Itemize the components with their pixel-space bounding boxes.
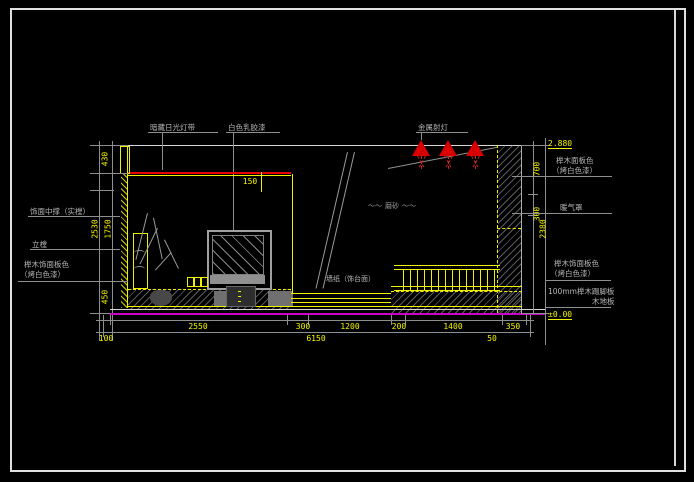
spotlight-cone-2 — [439, 140, 457, 156]
left-wall-hatch — [121, 173, 127, 308]
dim-100: 100 — [99, 334, 113, 343]
mid-platform-label: 墙纸（饰台面） — [326, 275, 375, 284]
goblet-1 — [187, 277, 194, 287]
goblet-3 — [201, 277, 208, 287]
dim-430: 430 — [101, 152, 110, 166]
ceiling-level-mark: 2.880 — [548, 139, 572, 149]
left-upright-label: 立樘 — [32, 240, 47, 249]
dim-1200: 1200 — [340, 322, 359, 331]
dim-1750: 1750 — [104, 219, 113, 238]
cad-elevation-canvas: 暗藏日光灯带 白色乳胶漆 150 430 2530 1750 450 饰面中撑（… — [0, 0, 694, 482]
spotlight-leader — [421, 132, 422, 140]
tv-screen — [212, 235, 264, 275]
step-line-1 — [291, 293, 391, 294]
pedestal-handle-1 — [238, 291, 241, 292]
hidden-light-leader — [162, 132, 163, 170]
cove-light-edge — [128, 175, 291, 176]
dim-200: 200 — [392, 322, 406, 331]
right-veneer-bottom-leader — [545, 280, 611, 281]
frosted-glass-label: 磨砂 — [385, 201, 399, 211]
left-upright-leader — [30, 249, 120, 250]
vase-detail-2 — [134, 266, 145, 272]
dim-450: 450 — [101, 290, 110, 304]
skirting-label: 100mm榉木踢脚板 — [548, 287, 614, 296]
left-veneer-leader — [18, 281, 92, 282]
pedestal-handle-3 — [238, 301, 241, 302]
btick-2 — [287, 315, 288, 325]
column-hatch — [497, 145, 522, 313]
left-tick-1750 — [90, 190, 114, 191]
white-paint-leader — [233, 132, 234, 242]
panel-edge-line — [292, 174, 293, 293]
skirting-leader — [545, 307, 611, 308]
dim-1400: 1400 — [443, 322, 462, 331]
dim-700: 700 — [533, 162, 542, 176]
hidden-light-label: 暗藏日光灯带 — [150, 123, 195, 132]
right-tick-ceiling — [521, 145, 549, 146]
goblet-2 — [194, 277, 201, 287]
right-veneer-bottom-label-2: （烤白色漆） — [550, 269, 595, 278]
spotlight-cone-1 — [412, 140, 430, 156]
radiator-cover-label: 暖气罩 — [560, 203, 583, 212]
tv-pedestal — [226, 286, 256, 307]
left-wall-line — [127, 145, 128, 308]
sheet-inner-border-line — [674, 10, 676, 466]
squiggle-right: ～～ — [402, 201, 416, 211]
spotlight-label: 金属射灯 — [418, 123, 448, 132]
right-platform-top-line — [391, 286, 522, 287]
dim-2380: 2380 — [539, 219, 548, 238]
right-tick-700 — [528, 194, 538, 195]
floor-structure-line — [110, 313, 545, 315]
wood-floor-label: 木地板 — [592, 297, 615, 306]
tv-speaker-band — [210, 275, 265, 284]
cabinet-base-right — [268, 291, 293, 307]
hidden-light-underline — [148, 132, 218, 133]
dim-50: 50 — [487, 334, 497, 343]
frosted-glass-callout: ～～ 磨砂 ～～ — [368, 201, 416, 211]
btick-7 — [526, 315, 527, 325]
btick-8 — [530, 315, 531, 337]
left-top-leader — [28, 216, 120, 217]
pedestal-handle-2 — [238, 296, 241, 297]
cove-light-line — [128, 172, 291, 174]
left-fascia — [120, 146, 130, 174]
dim-2550: 2550 — [188, 322, 207, 331]
dim-2530: 2530 — [91, 219, 100, 238]
step-line-2 — [291, 298, 391, 299]
right-veneer-bottom-label-1: 榉木饰面板色 — [554, 259, 599, 268]
column-face-line — [521, 145, 522, 313]
right-tick-floor — [521, 313, 549, 314]
bottom-dim-line-2 — [96, 332, 534, 333]
squiggle-left: ～～ — [368, 201, 382, 211]
right-veneer-top-leader — [512, 176, 612, 177]
white-paint-label: 白色乳胶漆 — [228, 123, 266, 132]
cove-dim-tick — [261, 172, 262, 192]
radiator-rail-top — [394, 265, 500, 266]
cove-offset-dim: 150 — [243, 177, 257, 186]
right-veneer-top-label-2: （烤白色漆） — [552, 166, 597, 175]
spotlight-underline — [416, 132, 468, 133]
btick-6 — [502, 315, 503, 325]
left-tick-450 — [90, 281, 128, 282]
left-dim-line-inner — [112, 141, 113, 341]
left-veneer-label-2: （烤白色漆） — [20, 270, 65, 279]
spotlight-cone-3 — [466, 140, 484, 156]
floor-finish-line — [128, 306, 522, 307]
dim-350: 350 — [506, 322, 520, 331]
step-line-3 — [291, 302, 391, 303]
floor-sub-line — [110, 309, 545, 310]
left-tick-ceiling — [90, 145, 128, 146]
dim-6150: 6150 — [306, 334, 325, 343]
plant-pot — [150, 290, 172, 306]
left-top-label: 饰面中撑（实樘） — [30, 207, 90, 216]
white-paint-underline — [226, 132, 280, 133]
floor-level-mark: ±0.00 — [548, 310, 572, 320]
left-veneer-label-1: 榉木饰面板色 — [24, 260, 69, 269]
dim-300b: 300 — [296, 322, 310, 331]
left-dim-line-outer — [99, 141, 100, 341]
column-inner-dashed-line — [497, 228, 521, 229]
btick-1 — [110, 315, 111, 325]
bottom-dim-line-1 — [96, 320, 534, 321]
left-tick-cove — [90, 173, 128, 174]
radiator-cover-leader — [512, 213, 612, 214]
right-veneer-top-label-1: 榉木面板色 — [556, 156, 594, 165]
